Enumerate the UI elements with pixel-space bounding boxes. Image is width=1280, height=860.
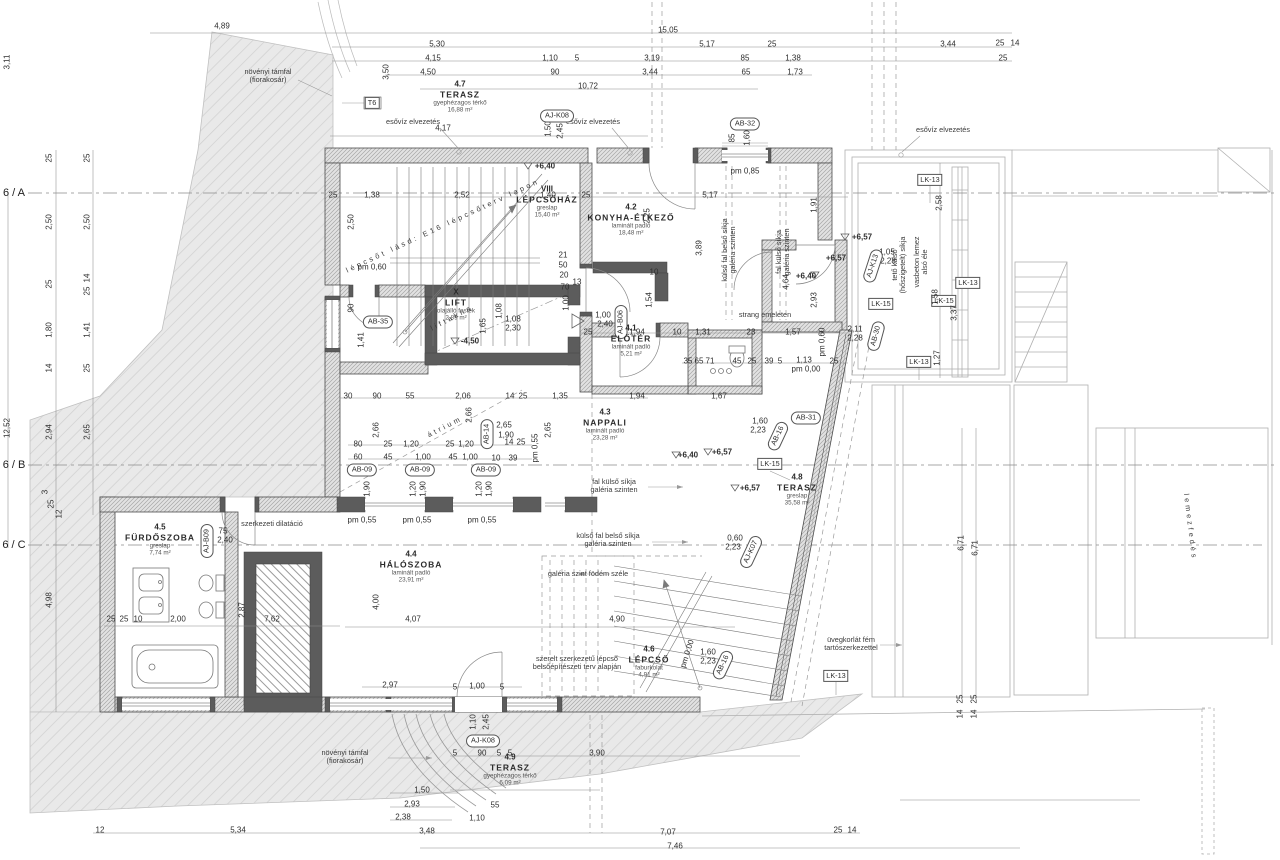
ground-hatch <box>30 0 862 813</box>
floor-plan-drawing <box>0 0 1280 860</box>
bidet <box>199 602 213 618</box>
toilet <box>199 575 213 591</box>
floor-plan-canvas: 4,8915,055,30255,173,4425144,151,1053,19… <box>0 0 1280 860</box>
shaft-hatch <box>256 564 310 693</box>
stairs <box>390 167 801 697</box>
